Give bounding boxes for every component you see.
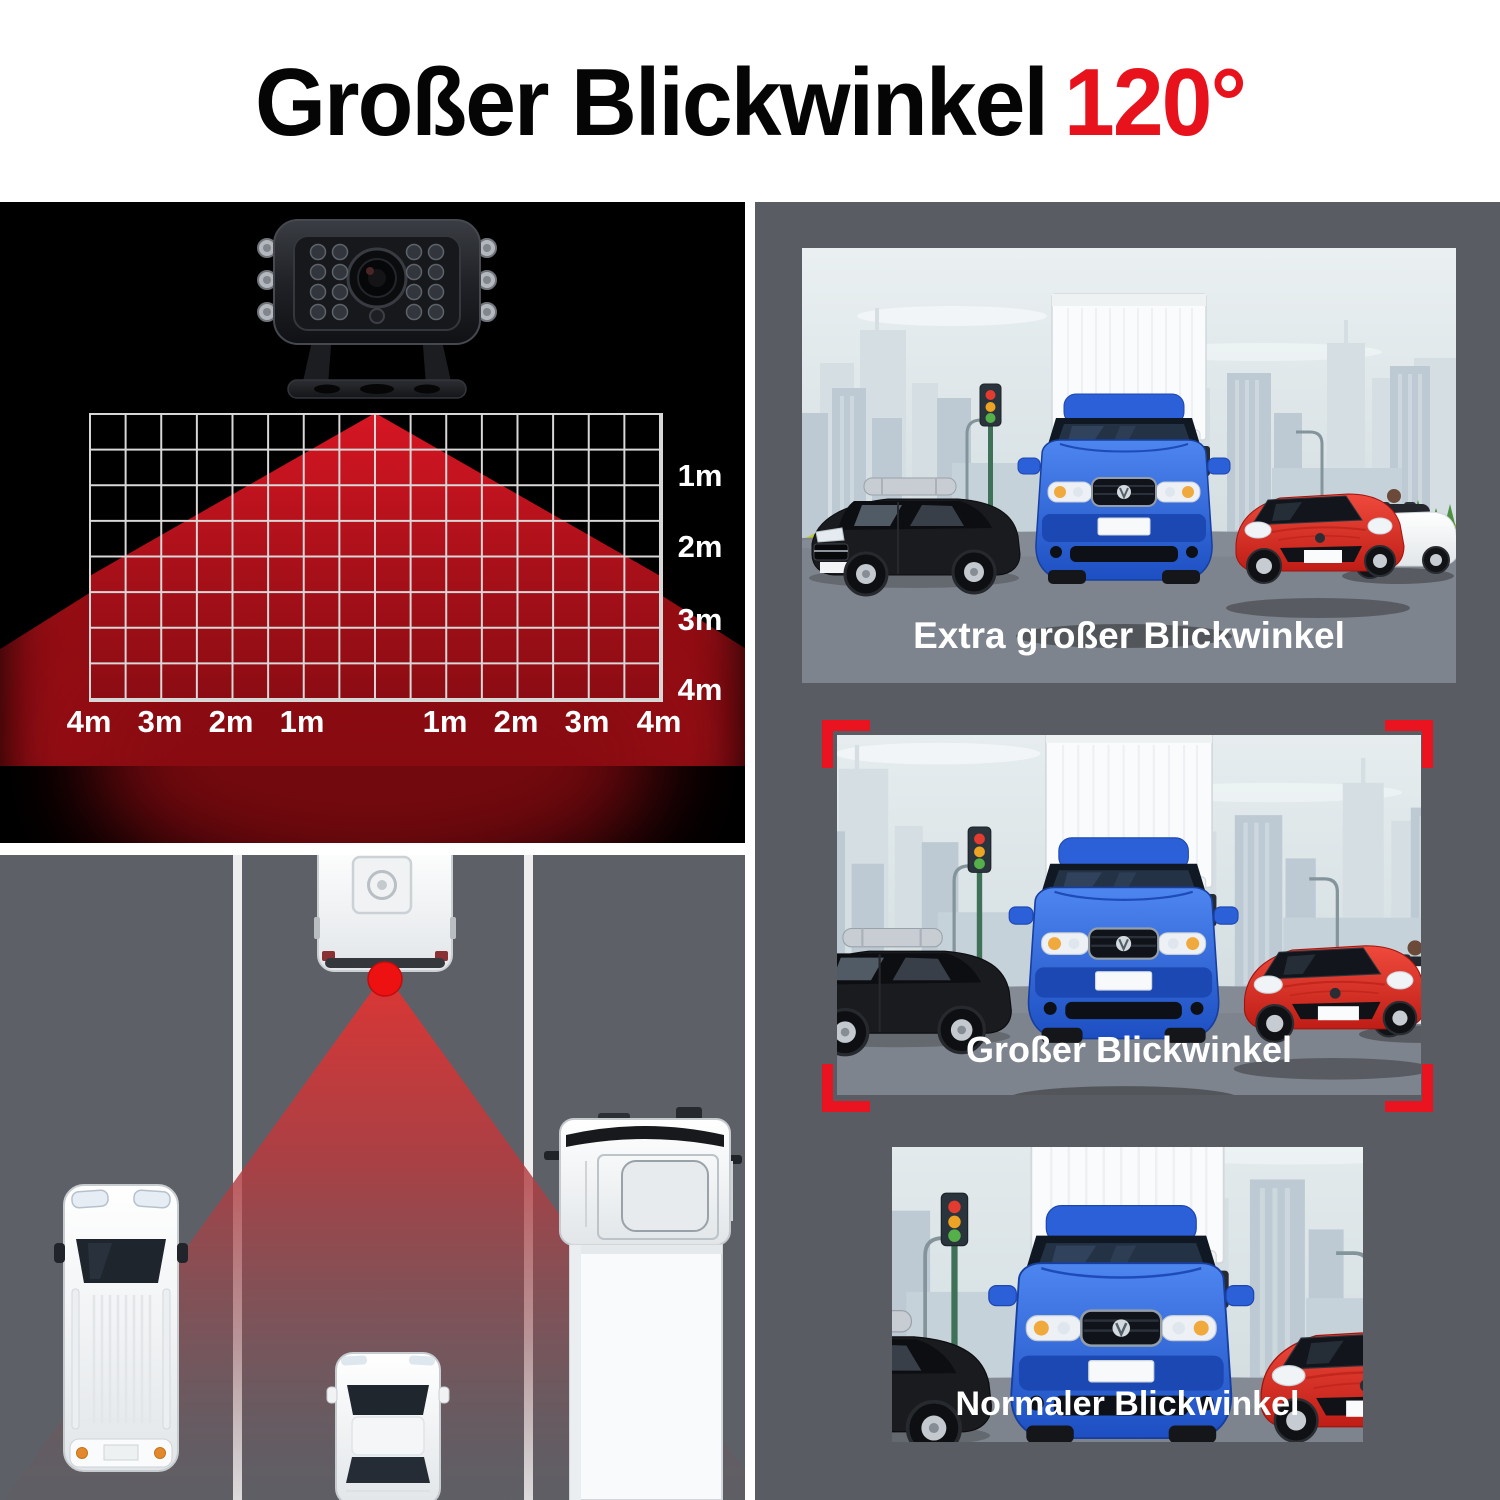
page-title-accent: 120° — [1064, 49, 1245, 156]
panel-caption: Großer Blickwinkel — [837, 1029, 1421, 1071]
comparison-panel-normal: Normaler Blickwinkel — [892, 1147, 1363, 1442]
camera-dot — [368, 962, 402, 996]
comparison-panel-extra-wide: Extra großer Blickwinkel — [802, 248, 1456, 683]
camera-vehicle — [314, 855, 456, 971]
distance-label-bottom: 1m — [267, 704, 337, 740]
camera-lens — [348, 249, 406, 307]
distance-label-right: 3m — [668, 602, 732, 638]
distance-label-bottom: 4m — [54, 704, 124, 740]
vehicle-truck — [544, 1107, 742, 1500]
distance-label-right: 1m — [668, 458, 732, 494]
page-title-main: Großer Blickwinkel — [255, 49, 1047, 156]
distance-label-bottom: 3m — [552, 704, 622, 740]
panel-caption: Normaler Blickwinkel — [892, 1385, 1363, 1424]
rear-camera-illustration — [252, 214, 502, 414]
panel-caption: Extra großer Blickwinkel — [802, 615, 1456, 657]
distance-label-bottom: 1m — [410, 704, 480, 740]
topdown-scene — [0, 855, 745, 1500]
comparison-section: Extra großer Blickwinkel — [755, 202, 1500, 1500]
distance-label-right: 2m — [668, 529, 732, 565]
vehicle-van — [54, 1185, 188, 1471]
distance-label-right: 4m — [668, 672, 732, 708]
camera-infographic: Großer Blickwinkel120° — [0, 0, 1500, 1500]
distance-label-bottom: 2m — [196, 704, 266, 740]
camera-range-panel: 1m 2m 3m 4m 4m 3m 2m 1m 1m 2m 3m 4m — [0, 202, 745, 843]
range-grid-lines — [89, 413, 663, 702]
distance-label-bottom: 2m — [481, 704, 551, 740]
distance-label-bottom: 3m — [125, 704, 195, 740]
vehicle-sedan — [327, 1353, 449, 1500]
comparison-panel-wide: Großer Blickwinkel — [837, 735, 1421, 1095]
page-title: Großer Blickwinkel120° — [38, 28, 1463, 178]
distance-label-bottom: 4m — [624, 704, 694, 740]
camera-light-sensor — [370, 309, 384, 323]
